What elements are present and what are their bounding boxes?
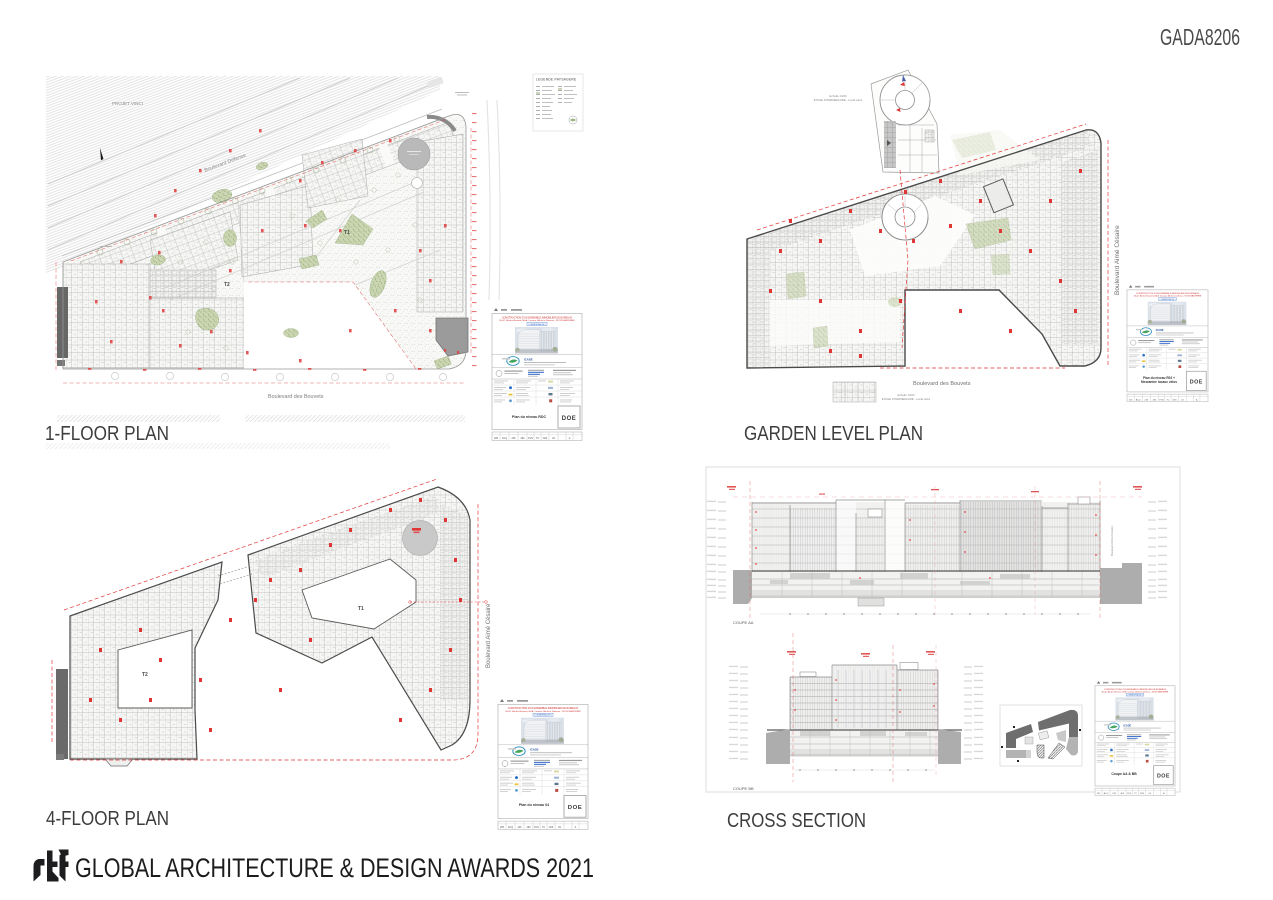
svg-text:Plan du niveau RDC: Plan du niveau RDC [512, 415, 547, 419]
svg-text:GLOBAL ARCHITECTURE & DESIGN A: GLOBAL ARCHITECTURE & DESIGN AWARDS 2021 [75, 853, 594, 883]
svg-text:Boulevard Aimé Césaire: Boulevard Aimé Césaire [1110, 526, 1114, 556]
svg-text:1-FLOOR PLAN: 1-FLOOR PLAN [45, 423, 169, 445]
svg-text:Plan du niveau 04: Plan du niveau 04 [519, 803, 549, 807]
svg-text:Mezzanine locaux vélos: Mezzanine locaux vélos [1141, 380, 1177, 384]
svg-text:GADA8206: GADA8206 [1160, 24, 1240, 50]
svg-text:ETAGE INTERMEDIAIRE - Local vé: ETAGE INTERMEDIAIRE - Local vélos [814, 98, 863, 102]
svg-text:Boulevard Aimé Césaire: Boulevard Aimé Césaire [1114, 225, 1121, 295]
svg-text:PROJET VINCI: PROJET VINCI [112, 101, 143, 106]
svg-text:CROSS SECTION: CROSS SECTION [727, 810, 866, 832]
svg-text:T1: T1 [358, 606, 364, 612]
svg-text:COUPE BB: COUPE BB [733, 786, 754, 791]
svg-text:LEGENDE PAYSAGERE: LEGENDE PAYSAGERE [536, 78, 576, 82]
svg-text:Boulevard des Bouvets: Boulevard des Bouvets [268, 394, 324, 400]
svg-text:T1: T1 [344, 230, 350, 236]
svg-text:Boulevard des Bouvets: Boulevard des Bouvets [913, 381, 971, 387]
svg-text:COUPE AA: COUPE AA [733, 620, 754, 625]
svg-text:T2: T2 [142, 672, 148, 678]
svg-text:T2: T2 [224, 282, 230, 288]
svg-text:Boulevard Aimé Césaire: Boulevard Aimé Césaire [486, 603, 492, 668]
svg-text:4-FLOOR PLAN: 4-FLOOR PLAN [46, 808, 169, 830]
svg-text:GARDEN LEVEL PLAN: GARDEN LEVEL PLAN [744, 423, 923, 445]
svg-text:Coupe AA & BB: Coupe AA & BB [1111, 772, 1137, 776]
svg-text:ETAGE INTERMEDIAIRE - Local vé: ETAGE INTERMEDIAIRE - Local vélos [882, 397, 931, 401]
